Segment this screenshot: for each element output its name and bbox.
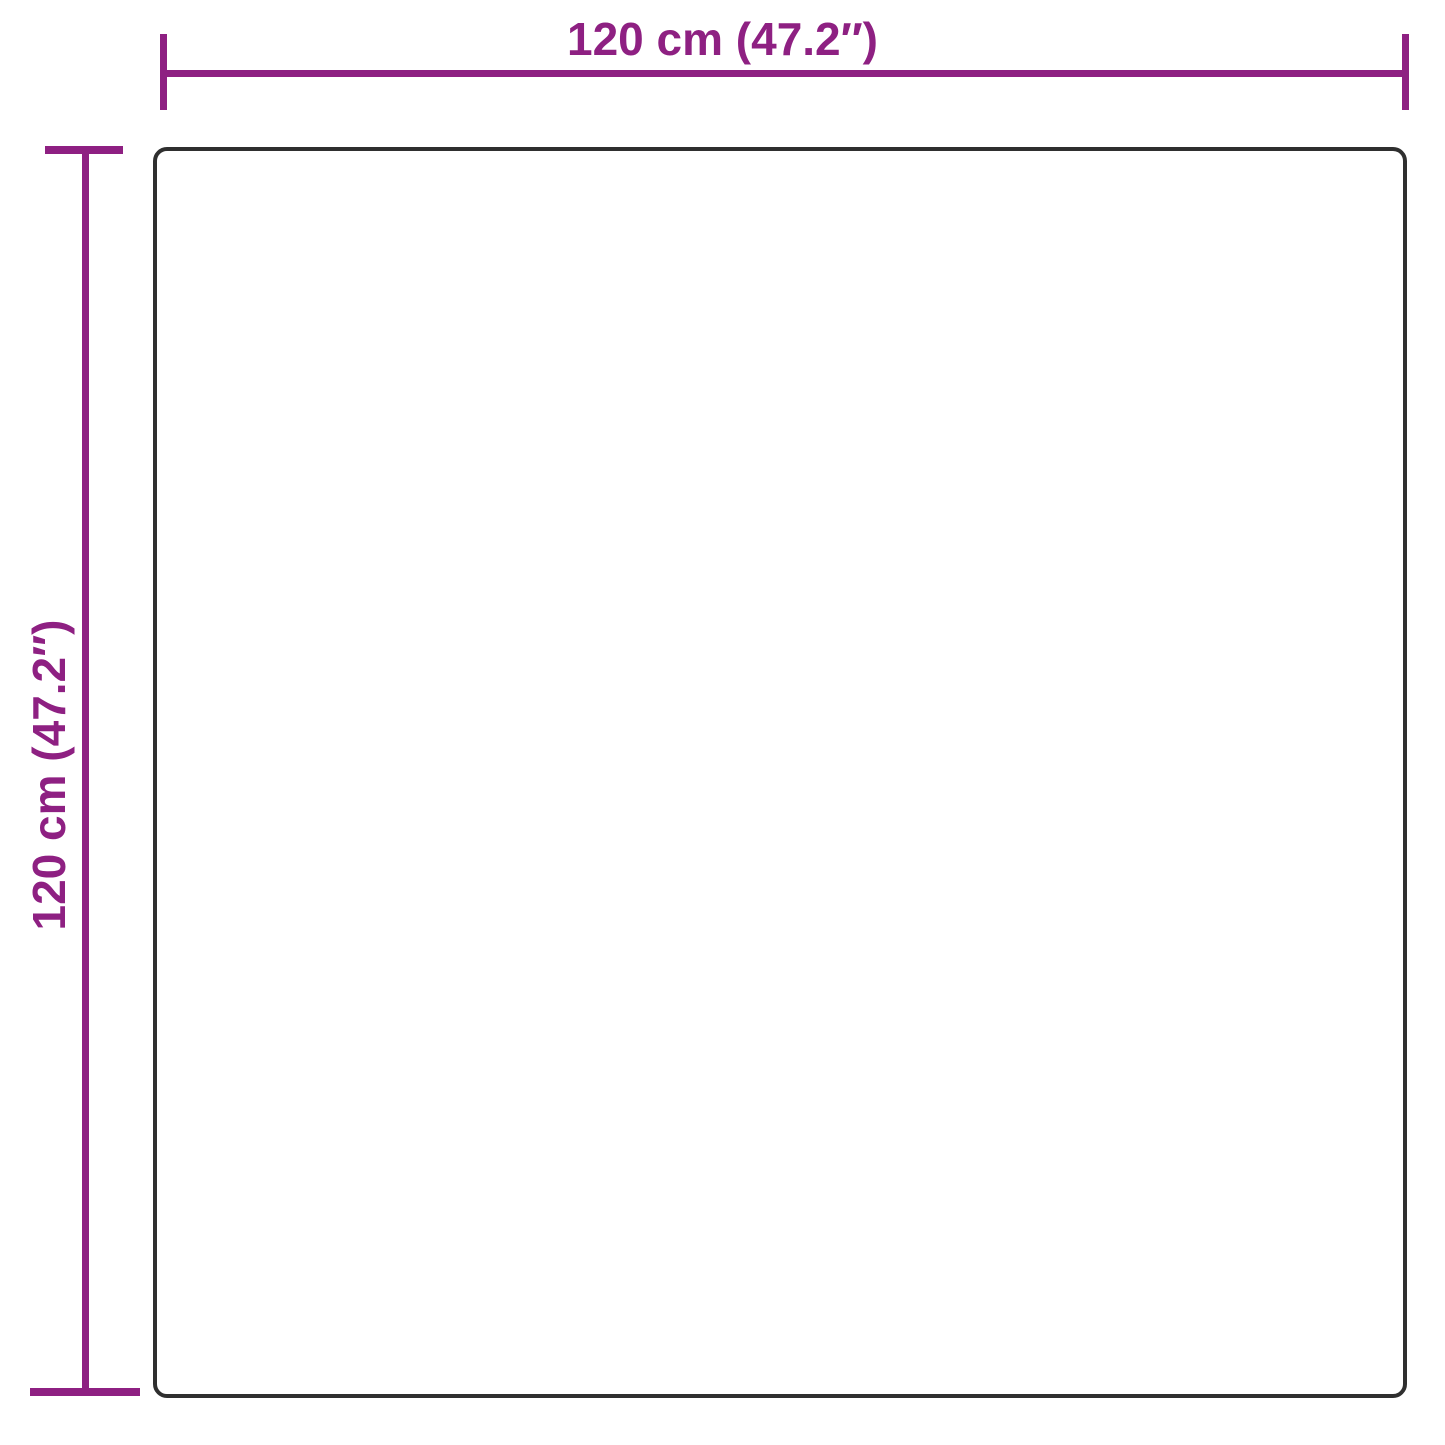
height-tick-bottom [30,1388,140,1396]
width-label: 120 cm (47.2″) [0,14,1445,65]
width-dimension-line [160,70,1409,77]
height-label: 120 cm (47.2″) [24,425,84,1125]
product-outline [153,147,1407,1398]
height-tick-top [45,146,123,154]
dimension-diagram: 120 cm (47.2″) 120 cm (47.2″) [0,0,1445,1445]
